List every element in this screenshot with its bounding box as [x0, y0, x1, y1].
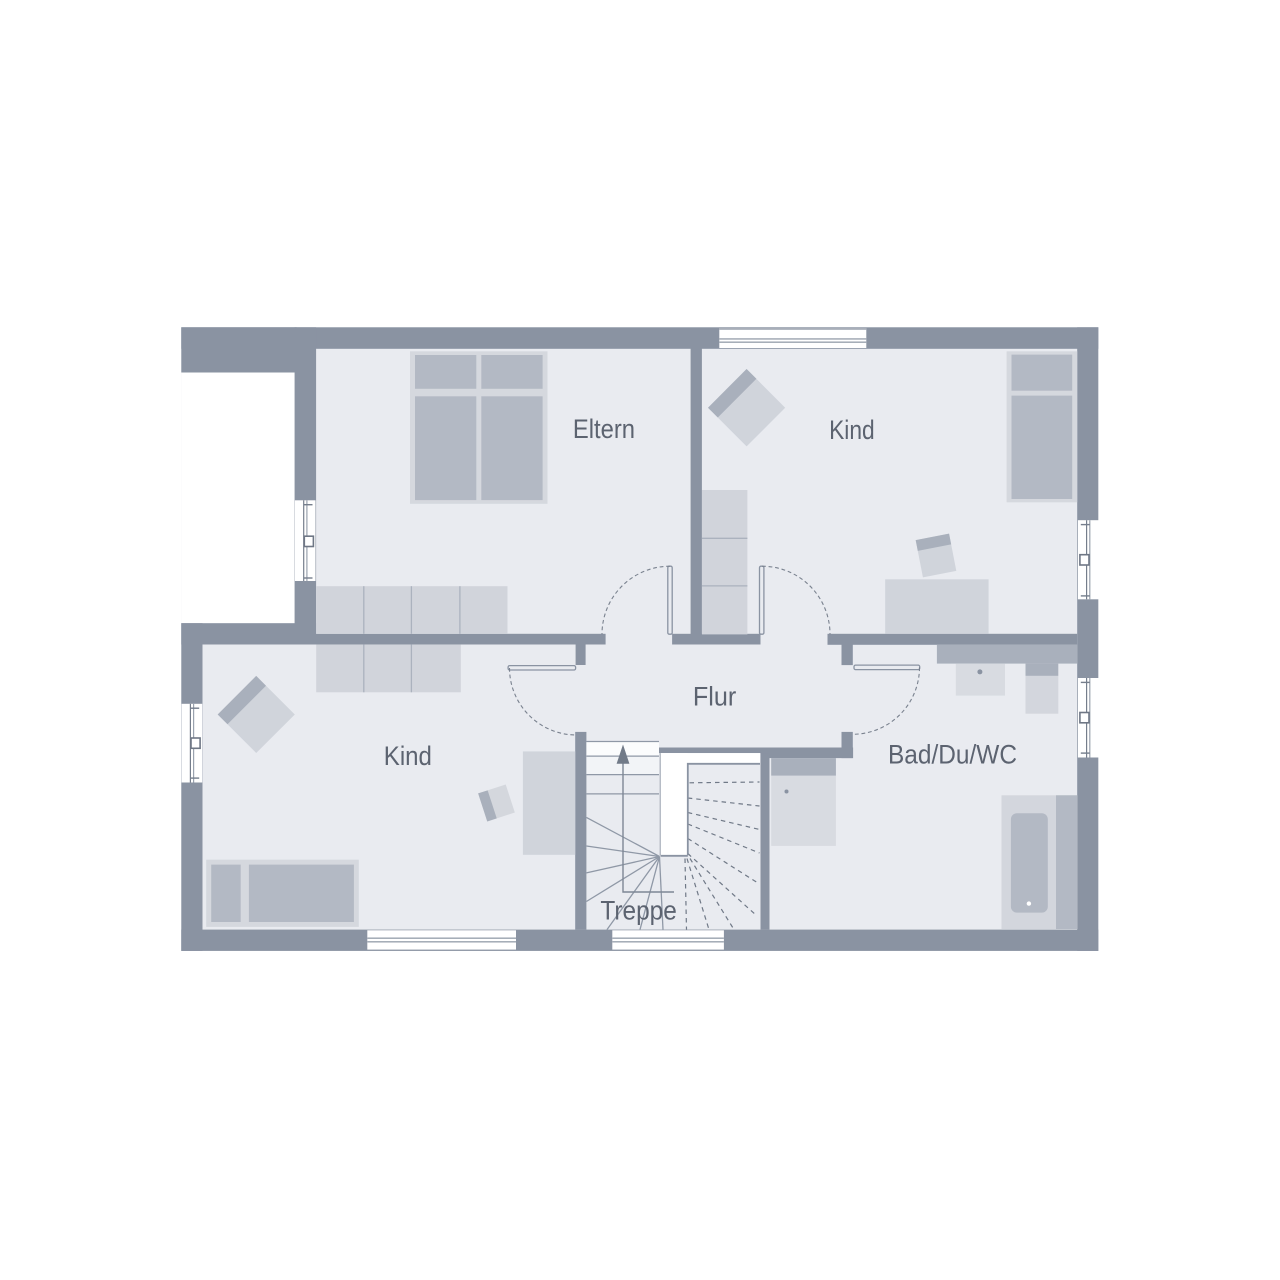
svg-text:Eltern: Eltern: [573, 414, 635, 444]
svg-text:Treppe: Treppe: [600, 896, 676, 926]
svg-text:Kind: Kind: [384, 741, 432, 771]
svg-text:Kind: Kind: [829, 415, 875, 445]
svg-text:Bad/Du/WC: Bad/Du/WC: [888, 740, 1017, 770]
svg-text:Flur: Flur: [693, 682, 736, 712]
